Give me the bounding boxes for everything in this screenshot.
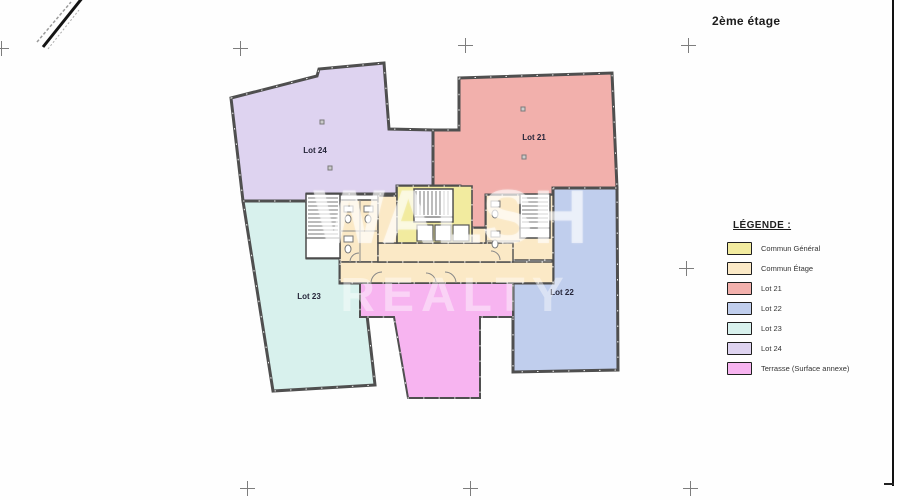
legend-color-swatch [727, 302, 752, 315]
plan-detail-rect-15 [344, 206, 353, 212]
legend-title: LÉGENDE : [733, 220, 887, 231]
legend-item-label: Commun Étage [761, 264, 813, 273]
terrasse-region [360, 283, 513, 398]
column-marker-0 [320, 120, 324, 124]
plan-detail-rect-23 [491, 231, 500, 237]
lot-22-label: Lot 22 [550, 288, 574, 297]
plan-detail-rect-4 [435, 225, 451, 241]
legend-color-swatch [727, 282, 752, 295]
legend-item-label: Lot 24 [761, 344, 782, 353]
legend-item-5: Lot 24 [727, 342, 887, 355]
legend-color-swatch [727, 242, 752, 255]
plan-detail-ellipse-16 [345, 215, 351, 223]
column-marker-2 [521, 107, 525, 111]
column-marker-1 [328, 166, 332, 170]
legend-item-label: Commun Général [761, 244, 820, 253]
plan-detail-rect-19 [364, 206, 373, 212]
legend-color-swatch [727, 362, 752, 375]
legend-color-swatch [727, 322, 752, 335]
legend-item-6: Terrasse (Surface annexe) [727, 362, 887, 375]
legend-color-swatch [727, 342, 752, 355]
legend-item-0: Commun Général [727, 242, 887, 255]
legend-item-label: Terrasse (Surface annexe) [761, 364, 849, 373]
legend-item-3: Lot 22 [727, 302, 887, 315]
commun-etage-strip-left-region [378, 196, 397, 243]
lot-23-label: Lot 23 [297, 292, 321, 301]
commun-etage-strip-right-region [472, 228, 486, 243]
plan-detail-ellipse-24 [492, 240, 498, 248]
plan-detail-ellipse-20 [365, 215, 371, 223]
legend-rows: Commun Général Commun Étage Lot 21 Lot 2… [727, 242, 887, 375]
plan-detail-ellipse-22 [492, 210, 498, 218]
legend-item-1: Commun Étage [727, 262, 887, 275]
lot-24-label: Lot 24 [303, 146, 327, 155]
plan-sheet: Lot 24Lot 21Lot 22Lot 23 WALSH REALTY 2è… [0, 0, 900, 500]
plan-detail-ellipse-18 [345, 245, 351, 253]
legend-item-label: Lot 21 [761, 284, 782, 293]
legend-item-label: Lot 23 [761, 324, 782, 333]
plan-detail-rect-21 [491, 201, 500, 207]
plan-detail-rect-9 [520, 194, 550, 238]
lot-21-label: Lot 21 [522, 133, 546, 142]
legend-item-2: Lot 21 [727, 282, 887, 295]
column-marker-3 [522, 155, 526, 159]
legend-color-swatch [727, 262, 752, 275]
plan-detail-rect-5 [453, 225, 469, 241]
lot-24-region [231, 63, 433, 201]
legend-item-4: Lot 23 [727, 322, 887, 335]
plan-detail-rect-17 [344, 236, 353, 242]
plan-detail-rect-3 [417, 225, 433, 241]
legend: LÉGENDE : Commun Général Commun Étage Lo… [727, 220, 887, 382]
legend-item-label: Lot 22 [761, 304, 782, 313]
